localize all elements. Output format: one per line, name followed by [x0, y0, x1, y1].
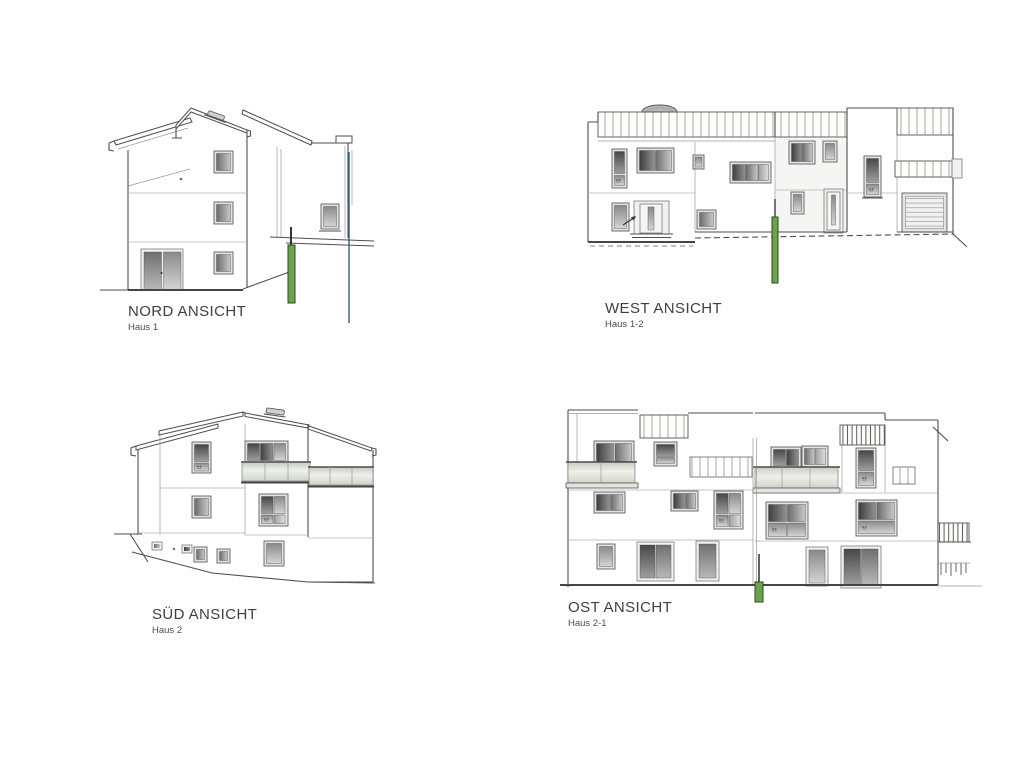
elevation-sheet: NORD ANSICHT Haus 1 WEST ANSICHT Haus 1-…: [0, 0, 1024, 768]
sued-balcony-block: [241, 424, 311, 566]
ost-stair-railing: [938, 523, 969, 542]
nord-title: NORD ANSICHT: [128, 303, 246, 320]
ost-terrace-door-left: [637, 542, 674, 581]
caption-nord: NORD ANSICHT Haus 1: [128, 303, 246, 333]
west-entrance-door-haus1: [630, 201, 673, 238]
west-green-post: [772, 217, 778, 283]
sued-right-balustrade: [308, 467, 374, 487]
west-roof-dome-skylight: [642, 105, 677, 112]
west-title: WEST ANSICHT: [605, 300, 722, 317]
sued-title: SÜD ANSICHT: [152, 606, 257, 623]
west-left-block: [588, 122, 775, 242]
ost-mid-roofdeck: [688, 413, 753, 477]
sued-terrain: [114, 534, 375, 583]
sued-roof-vent: [264, 408, 287, 417]
sued-subtitle: Haus 2: [152, 625, 257, 636]
ost-title: OST ANSICHT: [568, 599, 672, 616]
ost-terrace-door-right: [841, 546, 881, 588]
ost-green-post: [755, 582, 763, 602]
west-right-block: [847, 137, 897, 232]
ost-subtitle: Haus 2-1: [568, 618, 672, 629]
ost-roof-railing: [840, 425, 885, 445]
ost-ground: [560, 585, 982, 586]
west-subtitle: Haus 1-2: [605, 319, 722, 330]
caption-sued: SÜD ANSICHT Haus 2: [152, 606, 257, 636]
nord-entrance-door: [141, 249, 183, 290]
caption-ost: OST ANSICHT Haus 2-1: [568, 599, 672, 629]
sued-balcony-balustrade: [241, 462, 311, 483]
ost-planting-marks: [941, 563, 966, 576]
nord-roof: [109, 108, 336, 186]
nord-green-post: [288, 245, 295, 303]
west-parapet: [588, 105, 953, 141]
ost-right-annex: [933, 427, 971, 576]
ost-left-balustrade: [566, 462, 638, 488]
sued-right-building: [308, 450, 374, 582]
nord-rear-building: [277, 136, 352, 238]
nord-subtitle: Haus 1: [128, 322, 246, 333]
sued-main-block: [160, 442, 245, 518]
west-mid-block: [775, 137, 847, 233]
ost-stair-core: [640, 415, 688, 466]
west-entrance-door-haus2: [824, 189, 843, 233]
ost-right-balustrade: [753, 467, 840, 493]
caption-west: WEST ANSICHT Haus 1-2: [605, 300, 722, 330]
ost-block-separation: [753, 438, 757, 585]
nord-windows: [214, 151, 233, 274]
elevation-nord-drawing: [100, 90, 390, 335]
